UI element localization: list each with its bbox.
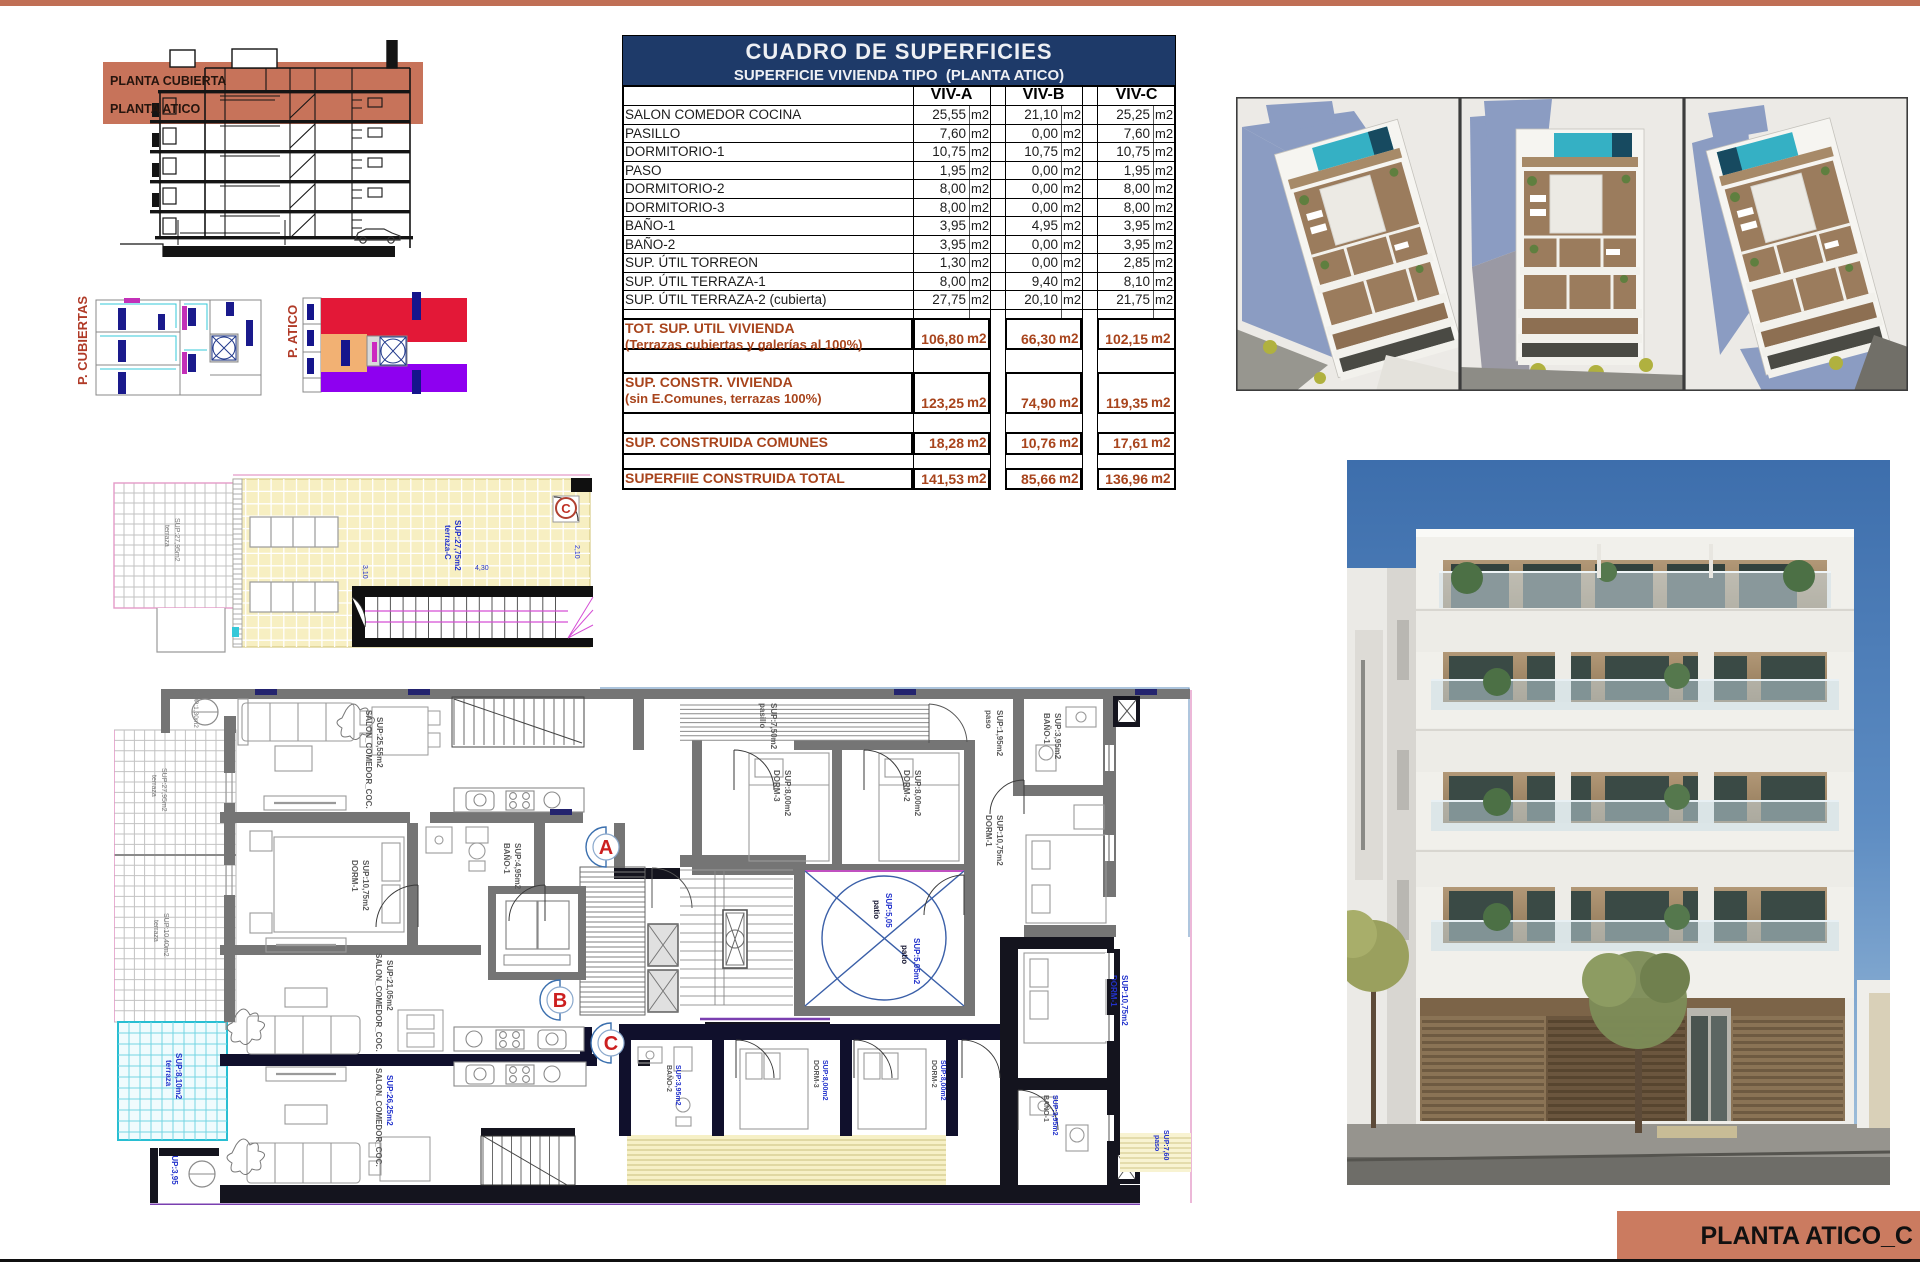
svg-text:SALON_COMEDOR_COC.: SALON_COMEDOR_COC. [374,1068,383,1167]
svg-text:DORM-1: DORM-1 [1109,975,1118,1007]
svg-text:SUP:7,50m2: SUP:7,50m2 [769,703,778,750]
svg-text:terraza: terraza [152,920,159,942]
svg-text:2,10: 2,10 [573,545,580,559]
svg-text:DORM-3: DORM-3 [812,1060,819,1088]
svg-text:DORM-1: DORM-1 [350,860,359,892]
svg-text:SUP:3,95m2: SUP:3,95m2 [1051,1095,1058,1136]
svg-text:3,10: 3,10 [361,565,368,579]
svg-text:SUP:7,60: SUP:7,60 [1162,1130,1169,1160]
svg-text:SUP:4,95m2: SUP:4,95m2 [513,843,522,890]
svg-text:SUP:5,05m2: SUP:5,05m2 [912,938,921,985]
svg-text:C: C [604,1033,618,1055]
svg-text:SUP:21,05m2: SUP:21,05m2 [385,960,394,1011]
svg-text:SUP:10,40m2: SUP:10,40m2 [162,913,169,957]
svg-text:patio: patio [900,945,909,964]
svg-text:SUP:25,55m2: SUP:25,55m2 [375,717,384,768]
svg-text:PLANTA CUBIERTA: PLANTA CUBIERTA [110,74,226,88]
svg-text:pasillo: pasillo [758,703,767,728]
svg-text:terraza: terraza [164,1060,173,1087]
svg-text:BAÑO-1: BAÑO-1 [1042,1095,1051,1122]
svg-text:SUP:27,75m2: SUP:27,75m2 [453,520,462,571]
svg-text:P. ATICO: P. ATICO [285,305,300,358]
svg-text:SALON_COMEDOR_COC.: SALON_COMEDOR_COC. [374,953,383,1052]
svg-text:SUP:5,05: SUP:5,05 [884,893,893,928]
svg-text:4,30: 4,30 [475,565,489,572]
svg-text:B: B [553,990,567,1012]
svg-text:SUP:27,95m2: SUP:27,95m2 [173,518,180,562]
svg-text:paso: paso [984,710,993,729]
svg-text:SUP:10,75m2: SUP:10,75m2 [995,815,1004,866]
svg-text:BAÑO-2: BAÑO-2 [665,1065,674,1092]
svg-text:C: C [561,501,571,516]
svg-text:SUP:10,75m2: SUP:10,75m2 [1120,975,1129,1026]
svg-text:BAÑO-1: BAÑO-1 [502,843,511,874]
svg-text:SUP:8,00m2: SUP:8,00m2 [913,770,922,817]
svg-text:SUP:10,75m2: SUP:10,75m2 [361,860,370,911]
svg-text:SUP:3,95m2: SUP:3,95m2 [674,1065,681,1106]
svg-text:DORM-2: DORM-2 [902,770,911,802]
svg-text:terraza-C: terraza-C [443,525,452,560]
svg-text:terraza: terraza [163,525,170,547]
svg-text:terraza: terraza [150,775,157,797]
svg-text:SUP:8,00m2: SUP:8,00m2 [783,770,792,817]
svg-text:SUP:27,95m2: SUP:27,95m2 [160,768,167,812]
svg-text:SUP:1,95m2: SUP:1,95m2 [995,710,1004,757]
svg-text:SUP:1,30m2: SUP:1,30m2 [192,691,199,728]
svg-text:DORM-2: DORM-2 [930,1060,937,1088]
svg-text:patio: patio [872,900,881,919]
svg-text:SALON_COMEDOR_COC.: SALON_COMEDOR_COC. [364,710,373,809]
svg-text:SUP:8,00m2: SUP:8,00m2 [939,1060,946,1101]
svg-text:SUP:8,10m2: SUP:8,10m2 [174,1053,183,1100]
svg-text:DORM-3: DORM-3 [772,770,781,802]
svg-text:DORM-1: DORM-1 [984,815,993,847]
svg-text:P. CUBIERTAS: P. CUBIERTAS [75,296,90,385]
svg-text:paso: paso [1153,1135,1160,1151]
svg-text:SUP:8,00m2: SUP:8,00m2 [821,1060,828,1101]
svg-text:SUP:3,95m2: SUP:3,95m2 [1053,713,1062,760]
svg-text:A: A [599,837,613,859]
svg-text:BAÑO-1: BAÑO-1 [1042,713,1051,744]
svg-text:PLANTA ATICO: PLANTA ATICO [110,102,201,116]
svg-text:SUP:26,25m2: SUP:26,25m2 [385,1075,394,1126]
